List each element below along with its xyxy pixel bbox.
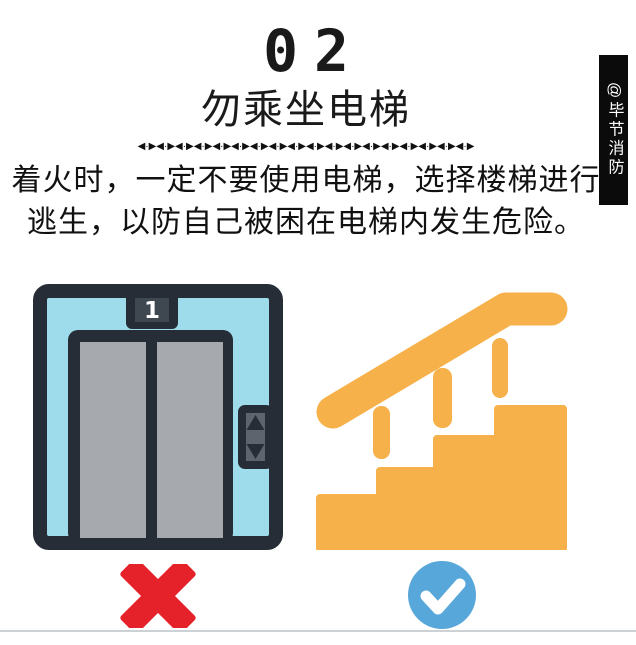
stairs-figure: [313, 284, 571, 630]
elevator-door-left: [80, 342, 146, 538]
floor-indicator: 1: [126, 289, 178, 329]
stair-steps: [320, 409, 563, 548]
floor-number: 1: [144, 298, 160, 324]
description-line-2: 逃生，以防自己被困在电梯内发生危险。: [0, 202, 612, 244]
baluster: [373, 406, 390, 459]
bottom-divider-line: [0, 630, 636, 632]
watermark-handle: @毕节消防: [602, 82, 626, 177]
baluster: [433, 368, 452, 428]
elevator-doors: [68, 330, 233, 543]
call-button-panel: [238, 405, 273, 469]
step-number: 02: [0, 22, 612, 80]
elevator-door-right: [157, 342, 223, 538]
elevator-illustration: 1: [33, 284, 283, 550]
header: 02 勿乘坐电梯 ◀·▶◀·▶◀·▶◀·▶◀·▶◀·▶◀·▶◀·▶◀·▶◀·▶◀…: [0, 22, 612, 244]
x-mark-icon: [108, 564, 208, 628]
stairs-illustration: [313, 284, 571, 550]
description-line-1: 着火时，一定不要使用电梯，选择楼梯进行: [0, 160, 612, 202]
baluster: [492, 338, 508, 398]
check-icon: [392, 560, 492, 630]
divider-ornament: ◀·▶◀·▶◀·▶◀·▶◀·▶◀·▶◀·▶◀·▶◀·▶◀·▶◀·▶◀·▶◀·▶◀…: [0, 142, 612, 152]
poster-page: @毕节消防 02 勿乘坐电梯 ◀·▶◀·▶◀·▶◀·▶◀·▶◀·▶◀·▶◀·▶◀…: [0, 22, 636, 645]
watermark-banner: @毕节消防: [599, 55, 628, 205]
elevator-figure: 1: [33, 284, 283, 630]
page-title: 勿乘坐电梯: [0, 86, 612, 134]
description: 着火时，一定不要使用电梯，选择楼梯进行 逃生，以防自己被困在电梯内发生危险。: [0, 160, 612, 244]
figures-row: 1: [0, 284, 571, 630]
